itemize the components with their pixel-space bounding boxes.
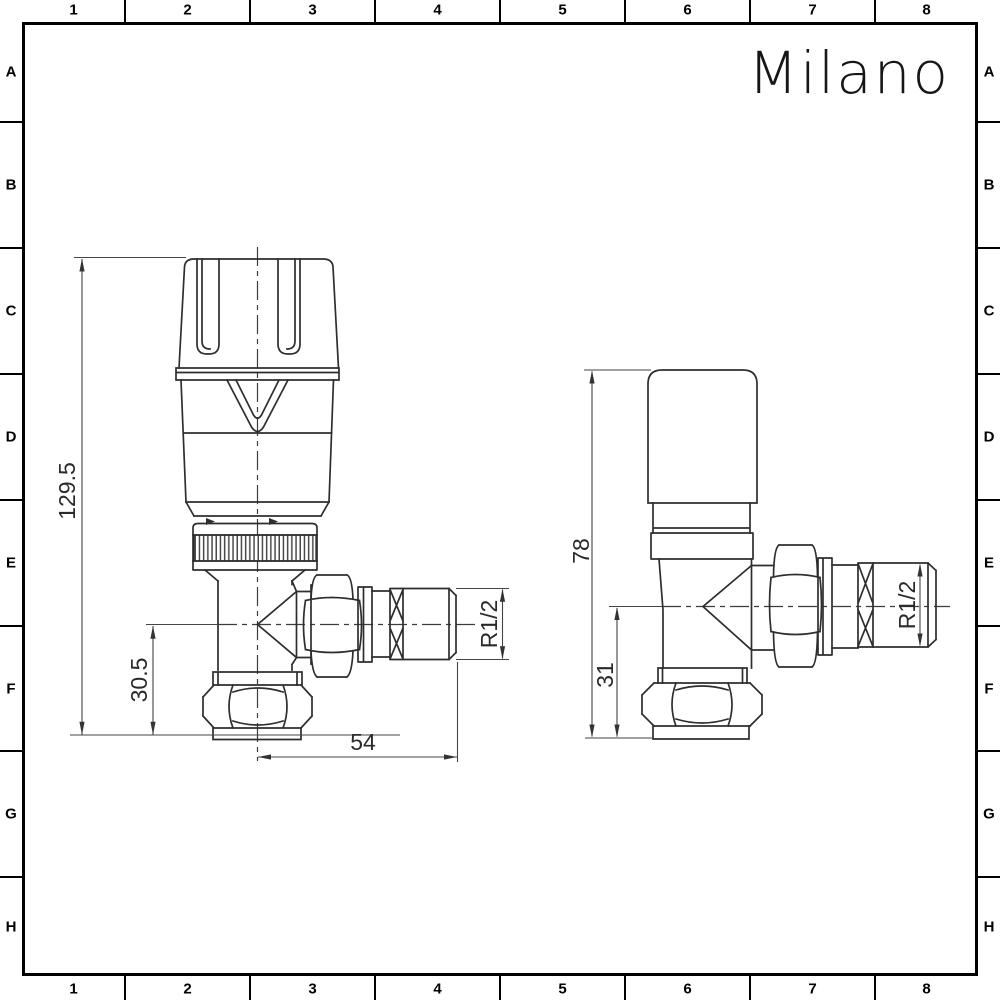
manual-valve-body-sides — [659, 559, 752, 668]
valve-body-sides — [218, 581, 292, 670]
manual-tail-nut-hex — [642, 683, 762, 726]
trv-head-left-grip-slot — [197, 259, 219, 354]
left-valve-drawing: 129.5 30.5 54 R1/2 — [54, 247, 509, 762]
valve-technical-drawing: 129.5 30.5 54 R1/2 — [0, 0, 1000, 1000]
manual-tail-nut-collar — [658, 668, 747, 683]
manual-tail-nut-base — [653, 726, 749, 739]
left-valve-dimensions: 129.5 30.5 54 R1/2 — [54, 258, 509, 763]
dimension-label-thread-size: R1/2 — [894, 581, 920, 630]
dimension-lines — [592, 372, 920, 737]
dimension-label-center-to-outlet-end: 54 — [350, 729, 376, 755]
manual-thread-runout-cross-section — [858, 563, 873, 647]
dimension-label-outlet-center-height: 30.5 — [126, 658, 152, 703]
manual-valve-neck — [653, 503, 750, 533]
manual-valve-seat-cone — [703, 566, 752, 651]
drawing-sheet: 1122334455667788AABBCCDDEEFFGGHH Milano — [0, 0, 1000, 1000]
knurled-collar-texture — [194, 535, 316, 561]
trv-head-left-slot-inner — [202, 259, 210, 349]
dimension-label-outlet-center-height: 31 — [592, 662, 618, 688]
valve-neck-taper — [205, 570, 305, 581]
dimension-label-overall-height: 78 — [568, 538, 594, 564]
dimension-label-overall-height: 129.5 — [54, 462, 80, 520]
right-valve-drawing: 78 31 R1/2 — [568, 370, 950, 739]
trv-head-outline — [179, 259, 339, 368]
trv-head-right-grip-slot — [278, 259, 300, 354]
manual-valve-collar — [651, 533, 753, 559]
outlet-union-hex-nut — [304, 575, 362, 677]
manual-valve-head — [648, 370, 757, 503]
trv-head-right-slot-inner — [287, 259, 295, 349]
dimension-label-thread-size: R1/2 — [476, 600, 502, 649]
